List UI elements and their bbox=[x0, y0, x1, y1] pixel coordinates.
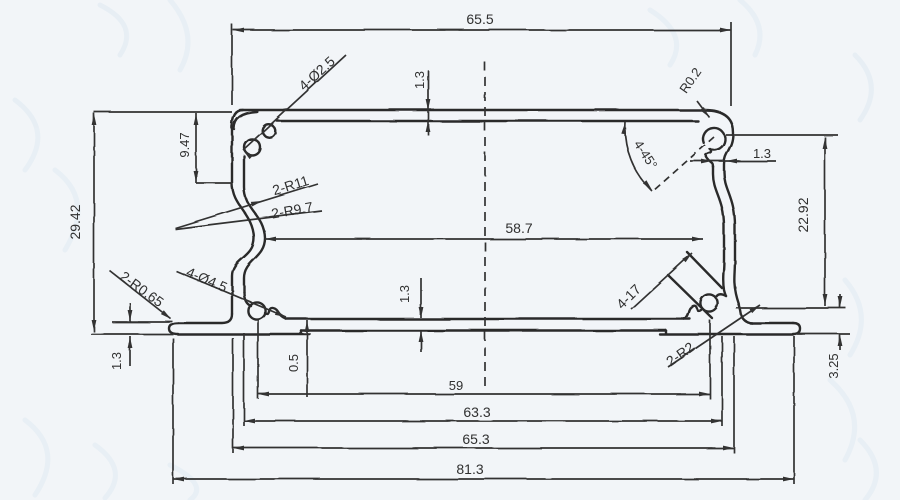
svg-text:4-45°: 4-45° bbox=[631, 137, 661, 171]
svg-text:2-R2: 2-R2 bbox=[663, 339, 697, 370]
svg-text:29.42: 29.42 bbox=[67, 204, 83, 239]
svg-text:1.3: 1.3 bbox=[109, 352, 124, 370]
svg-text:3.25: 3.25 bbox=[826, 353, 841, 378]
svg-text:0.5: 0.5 bbox=[286, 354, 301, 372]
svg-text:4-17: 4-17 bbox=[613, 281, 644, 312]
svg-text:63.3: 63.3 bbox=[463, 404, 490, 420]
svg-text:22.92: 22.92 bbox=[795, 197, 811, 232]
svg-text:1.3: 1.3 bbox=[753, 146, 771, 161]
svg-text:4-Ø4.5: 4-Ø4.5 bbox=[184, 264, 230, 296]
svg-text:1.3: 1.3 bbox=[397, 285, 412, 303]
svg-text:2-R0.65: 2-R0.65 bbox=[117, 268, 167, 310]
svg-text:2-R11: 2-R11 bbox=[270, 172, 310, 198]
svg-text:R0.2: R0.2 bbox=[676, 65, 704, 96]
svg-text:65.5: 65.5 bbox=[466, 11, 493, 27]
svg-text:2-R9.7: 2-R9.7 bbox=[270, 199, 314, 222]
svg-text:59: 59 bbox=[449, 378, 463, 393]
svg-text:1.3: 1.3 bbox=[412, 71, 427, 89]
svg-text:81.3: 81.3 bbox=[456, 461, 483, 477]
svg-text:58.7: 58.7 bbox=[505, 220, 532, 236]
svg-text:65.3: 65.3 bbox=[462, 431, 489, 447]
svg-text:4-Ø2.5: 4-Ø2.5 bbox=[295, 53, 338, 94]
svg-text:9.47: 9.47 bbox=[177, 132, 192, 157]
